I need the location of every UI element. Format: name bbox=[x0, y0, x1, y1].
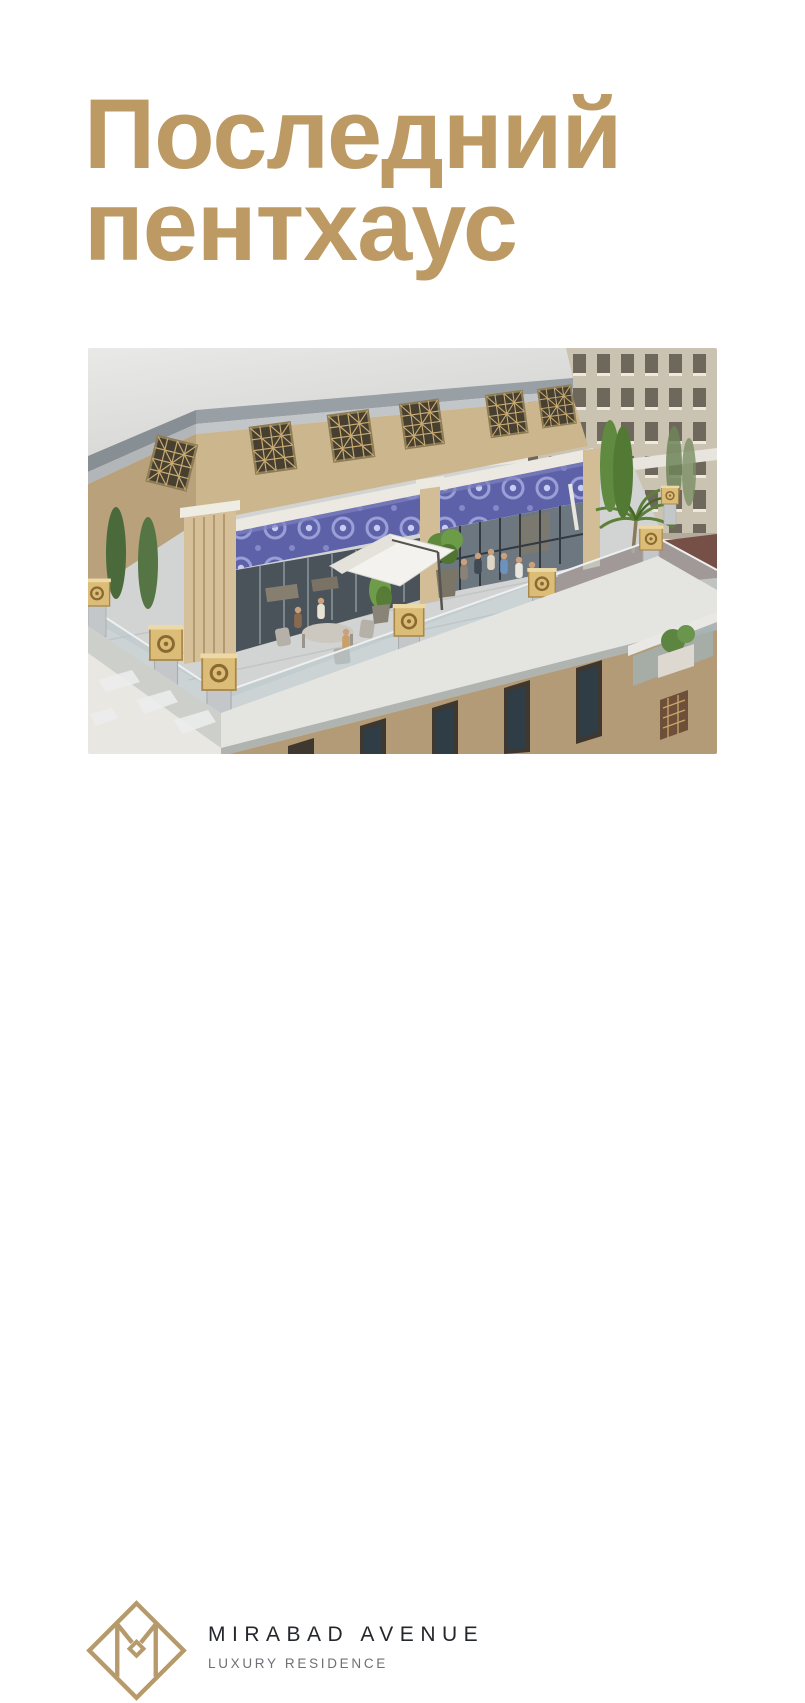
cypress-tree bbox=[138, 517, 158, 609]
cypress-tree bbox=[613, 426, 633, 518]
seated-person bbox=[294, 607, 302, 628]
logo-center-diamond bbox=[130, 1642, 144, 1656]
lattice-window bbox=[486, 391, 527, 437]
headline: Последний пентхаус bbox=[84, 88, 621, 272]
lattice-window bbox=[328, 410, 374, 461]
penthouse-ad-poster: { "page": { "background_color": "#ffffff… bbox=[0, 0, 805, 999]
penthouse-photo bbox=[88, 348, 717, 754]
logo-m-left-diagonal bbox=[117, 1624, 132, 1642]
lattice-window bbox=[250, 422, 296, 473]
logo-diamond-outline bbox=[89, 1603, 184, 1698]
headline-line-1: Последний bbox=[84, 88, 621, 180]
brand-name: MIRABAD AVENUE bbox=[208, 1623, 484, 1647]
corner-pilaster bbox=[184, 508, 236, 664]
lattice-window bbox=[538, 385, 576, 427]
brand-tagline: LUXURY RESIDENCE bbox=[208, 1656, 388, 1671]
headline-line-2: пентхаус bbox=[84, 180, 621, 272]
brand-block: MIRABAD AVENUE LUXURY RESIDENCE bbox=[0, 795, 805, 925]
lattice-window bbox=[400, 400, 444, 449]
brand-logo-icon bbox=[84, 1598, 189, 1703]
seated-person bbox=[317, 598, 325, 619]
logo-m-right-diagonal bbox=[141, 1624, 156, 1642]
